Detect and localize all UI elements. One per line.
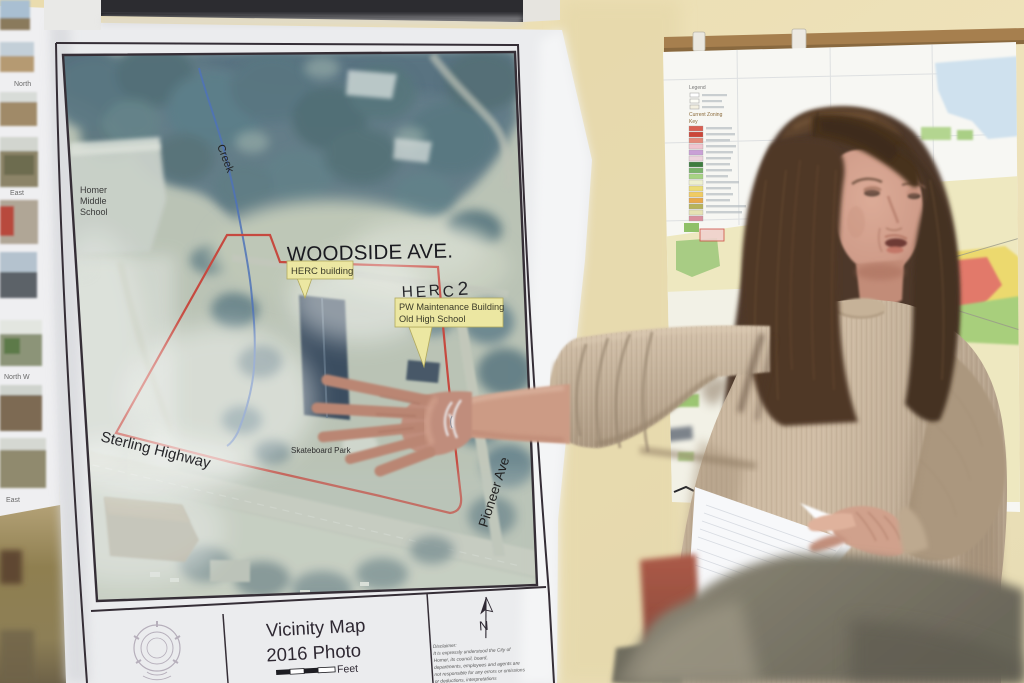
svg-text:Legend: Legend [689, 85, 706, 91]
svg-text:2: 2 [457, 279, 469, 301]
svg-text:Old High School: Old High School [399, 314, 465, 324]
svg-text:East: East [6, 497, 20, 504]
svg-text:Feet: Feet [337, 663, 359, 676]
svg-text:North: North [14, 81, 31, 88]
svg-text:PW Maintenance Building: PW Maintenance Building [399, 302, 504, 312]
svg-text:N: N [478, 618, 488, 634]
svg-text:East: East [10, 190, 24, 197]
svg-text:School: School [80, 207, 108, 217]
svg-text:Current Zoning: Current Zoning [689, 112, 723, 118]
svg-text:Homer: Homer [80, 185, 107, 195]
svg-text:North W: North W [4, 374, 30, 381]
svg-text:HERC building: HERC building [291, 266, 353, 277]
svg-text:Middle: Middle [80, 196, 107, 206]
svg-text:Key: Key [689, 119, 698, 125]
svg-text:R: R [428, 282, 440, 300]
svg-text:Skateboard Park: Skateboard Park [291, 446, 352, 455]
